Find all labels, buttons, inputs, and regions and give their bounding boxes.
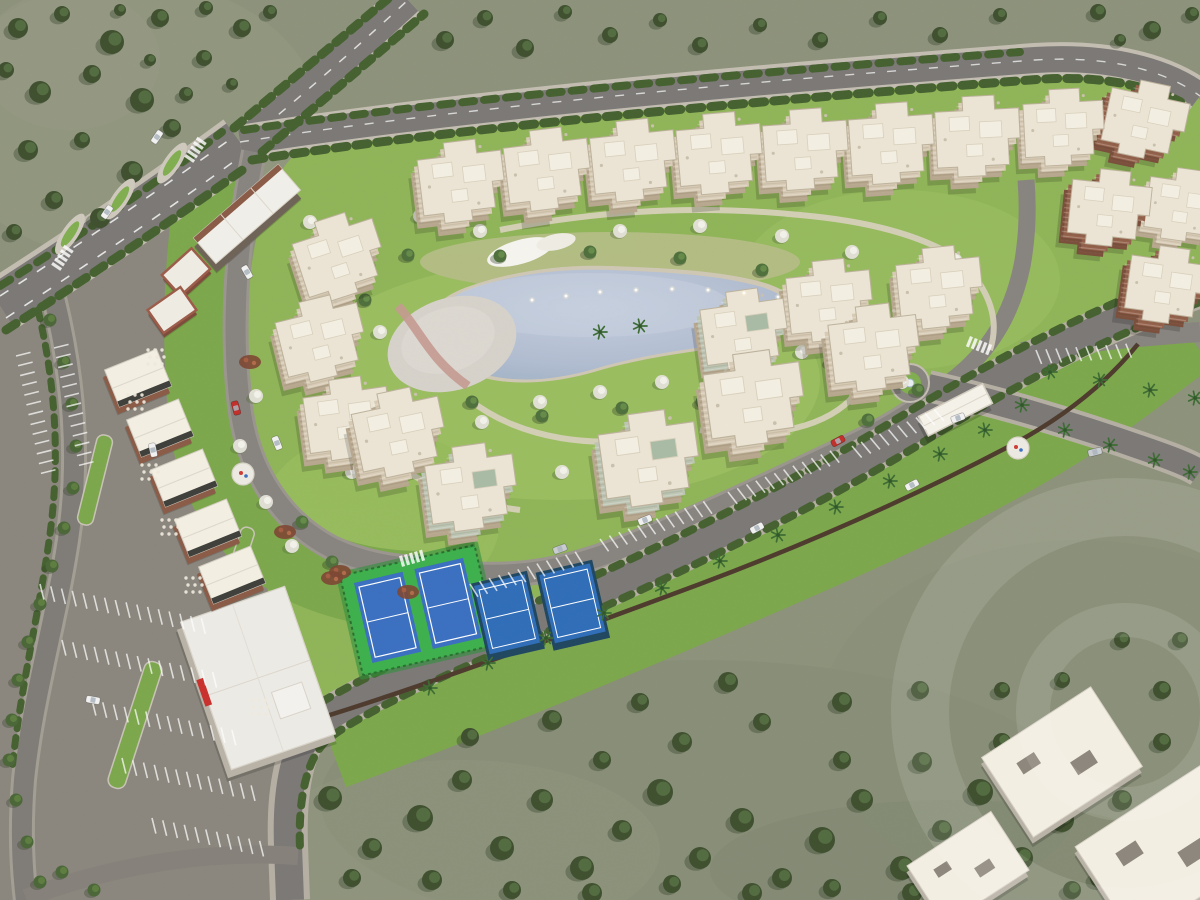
masterplan-render: Aerial 3D masterplan render of a residen… <box>0 0 1200 900</box>
aerial-render-canvas: Aerial 3D masterplan render of a residen… <box>0 0 1200 900</box>
render-grain <box>0 0 1200 900</box>
